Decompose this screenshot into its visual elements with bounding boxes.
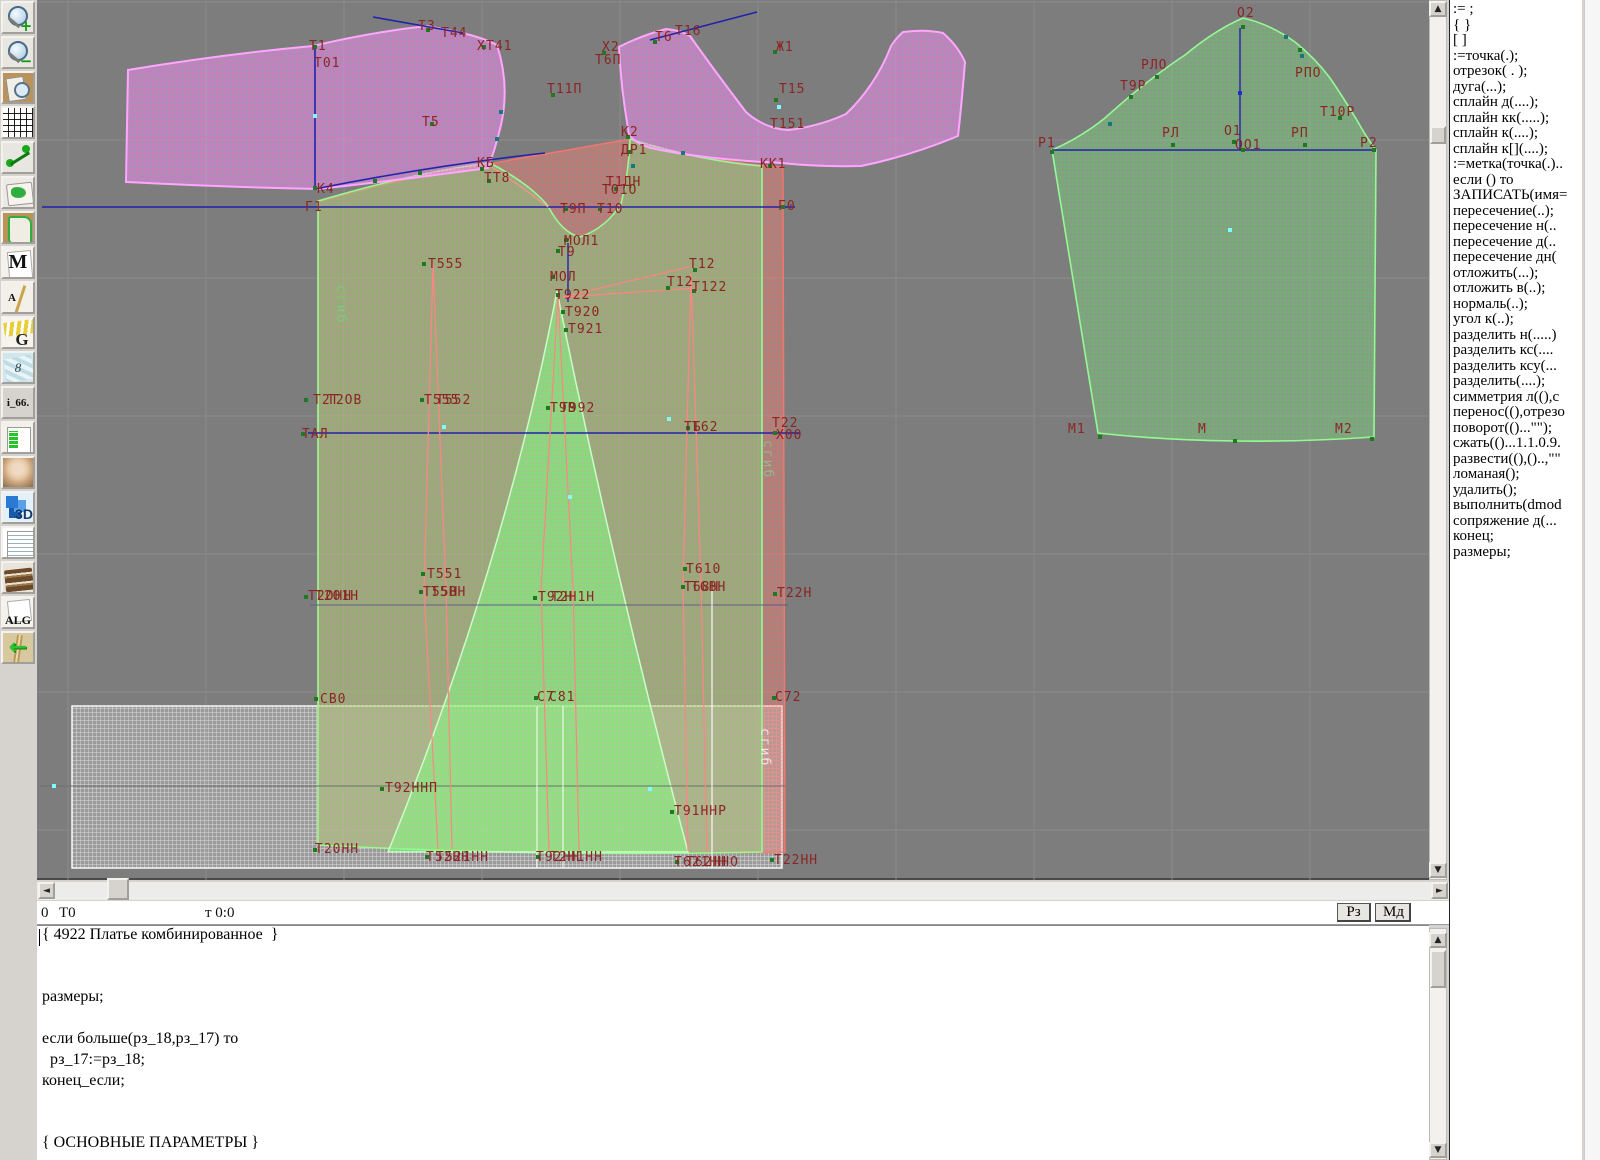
zoom-in-icon: +: [11, 11, 35, 34]
status-bar: 0 Т0 т 0:0 Рз Мд: [37, 901, 1449, 925]
point-label: ТТ8: [484, 171, 510, 186]
toolbar-three-d-button[interactable]: 3D: [1, 491, 35, 524]
command-item[interactable]: дуга(...);: [1453, 80, 1582, 96]
zoom-out-icon: −: [11, 46, 35, 69]
point-label: Г1: [305, 200, 323, 215]
editor-scroll-down-arrow-icon[interactable]: ▼: [1429, 1142, 1447, 1158]
green-point-marker[interactable]: [1303, 143, 1307, 147]
point-label: Р2: [1360, 136, 1378, 151]
point-label: М2: [1335, 422, 1353, 437]
command-item[interactable]: [ ]: [1453, 33, 1582, 49]
blueprint-icon: 8: [3, 353, 33, 382]
editor-scroll-up-arrow-icon[interactable]: ▲: [1429, 932, 1447, 948]
command-item[interactable]: разделить кс(....: [1453, 343, 1582, 359]
teal-point-marker[interactable]: [681, 151, 685, 155]
g-curves-icon: G: [7, 325, 35, 349]
green-point-marker[interactable]: [1370, 437, 1374, 441]
point-label: Т16: [675, 24, 701, 39]
point-label: РЛ: [1162, 126, 1180, 141]
green-point-marker[interactable]: [304, 398, 308, 402]
teal-point-marker[interactable]: [1284, 35, 1288, 39]
toolbar-letter-m-button[interactable]: M: [1, 246, 35, 279]
i66-icon: i_66.: [3, 388, 33, 417]
point-label: Т10Р: [1320, 105, 1355, 120]
command-item[interactable]: сплайн кк(.....);: [1453, 111, 1582, 127]
command-item[interactable]: сплайн к(....);: [1453, 126, 1582, 142]
editor-line[interactable]: конец_если;: [37, 1072, 1429, 1093]
cyan-point-marker[interactable]: [568, 495, 572, 499]
status-coords: т 0:0: [205, 905, 234, 922]
point-label: Т920: [565, 305, 600, 320]
command-item[interactable]: сжать(()...1.1.0.9.: [1453, 436, 1582, 452]
point-label: Т992: [560, 401, 595, 416]
drafting-icon: A: [1, 283, 27, 312]
fold-label: сгиб: [333, 285, 348, 324]
command-item[interactable]: :=точка(.);: [1453, 49, 1582, 65]
point-label: Т2Н1Н: [551, 590, 595, 605]
letter-m-icon: M: [3, 248, 33, 277]
green-point-marker[interactable]: [1241, 25, 1245, 29]
command-item[interactable]: сплайн д(....);: [1453, 95, 1582, 111]
point-label: С72: [775, 690, 801, 705]
rz-button[interactable]: Рз: [1337, 903, 1371, 922]
command-item[interactable]: пересечение дн(: [1453, 250, 1582, 266]
point-label: Т22Н: [777, 586, 812, 601]
md-button[interactable]: Мд: [1375, 903, 1411, 922]
command-item[interactable]: { }: [1453, 18, 1582, 34]
teal-point-marker[interactable]: [631, 164, 635, 168]
toolbar-books-button[interactable]: [1, 561, 35, 594]
point-label: Т521НН: [436, 850, 489, 865]
command-item[interactable]: сопряжение д(...: [1453, 514, 1582, 530]
command-item[interactable]: сплайн к[](....);: [1453, 142, 1582, 158]
point-label: К4: [317, 182, 335, 197]
point-label: Т22НН: [774, 853, 818, 868]
command-item[interactable]: отложить(...);: [1453, 266, 1582, 282]
cyan-point-marker[interactable]: [1228, 228, 1232, 232]
toolbar-g-curves-button[interactable]: G: [1, 316, 35, 349]
point-label: ДР1: [621, 143, 647, 158]
point-label: Ж1: [776, 40, 794, 55]
green-point-marker[interactable]: [421, 572, 425, 576]
point-label: Т6ВН: [691, 580, 726, 595]
command-item[interactable]: разделить(....);: [1453, 374, 1582, 390]
point-label: Т12: [667, 275, 693, 290]
point-label: Т2Н1НН: [550, 850, 603, 865]
cad-application-window: { "toolbar": { "items": [ {"name":"zoom-…: [0, 0, 1600, 1160]
command-item[interactable]: ЗАПИСАТЬ(имя=: [1453, 188, 1582, 204]
point-label: КБ: [477, 156, 495, 171]
point-label: Т921: [568, 322, 603, 337]
toolbar-alg-button[interactable]: ALG: [1, 596, 35, 629]
toolbar-import-arrow-button[interactable]: ←: [1, 631, 35, 664]
command-list: := ;{ }[ ]:=точка(.);отрезок( . );дуга(.…: [1450, 0, 1582, 560]
scroll-down-arrow-icon[interactable]: ▼: [1429, 862, 1447, 878]
toolbar: +−MAG8i_66.3DALG←: [0, 0, 37, 1160]
alg-icon: ALG: [3, 606, 33, 629]
command-item[interactable]: перенос((),отрезо: [1453, 405, 1582, 421]
fold-label: сгиб: [757, 728, 772, 767]
status-point-name: Т0: [59, 905, 76, 922]
import-arrow-icon: ←: [3, 633, 33, 662]
point-label: К2: [621, 125, 639, 140]
status-number: 0: [41, 905, 49, 922]
point-label: Т5ВН: [431, 585, 466, 600]
three-d-icon: 3D: [9, 499, 35, 524]
toolbar-document-button[interactable]: [1, 526, 35, 559]
point-label: С81: [549, 690, 575, 705]
toolbar-zoom-in-button[interactable]: +: [1, 1, 35, 34]
toolbar-pattern-piece-button[interactable]: [1, 211, 35, 244]
green-point-marker[interactable]: [1298, 48, 1302, 52]
point-label: Т610: [686, 562, 721, 577]
command-item[interactable]: удалить();: [1453, 483, 1582, 499]
command-item[interactable]: пересечение н(..: [1453, 219, 1582, 235]
point-label: ТАЛ: [302, 427, 328, 442]
toolbar-measure-button[interactable]: [1, 141, 35, 174]
teal-point-marker[interactable]: [495, 137, 499, 141]
editor-line[interactable]: { ОСНОВНЫЕ ПАРАМЕТРЫ }: [37, 1134, 1429, 1155]
point-label: МОЛ: [550, 270, 576, 285]
point-label: Т91ННР: [674, 804, 727, 819]
point-label: Х: [477, 39, 486, 54]
green-point-marker[interactable]: [418, 171, 422, 175]
point-label: Т2ОВ: [327, 393, 362, 408]
point-label: Т11П: [547, 82, 582, 97]
point-label: Т3: [418, 19, 436, 34]
green-point-marker[interactable]: [314, 697, 318, 701]
point-label: СВ0: [320, 692, 346, 707]
point-label: Т92ННП: [385, 781, 438, 796]
command-item[interactable]: конец;: [1453, 529, 1582, 545]
command-item[interactable]: размеры;: [1453, 545, 1582, 561]
command-item[interactable]: разделить н(.....): [1453, 328, 1582, 344]
point-label: Р1: [1038, 136, 1056, 151]
point-label: Т555: [428, 257, 463, 272]
pattern-drawing[interactable]: Т3Т44Т1Т01ХТ41Т5К4Г1КБТТ8Т11ПТ9ПТ10Х2Т6П…: [37, 0, 1429, 880]
cyan-point-marker[interactable]: [313, 114, 317, 118]
green-point-marker[interactable]: [380, 787, 384, 791]
point-label: Т62ННО: [686, 855, 739, 870]
canvas-hscrollbar[interactable]: ◄ ►: [37, 882, 1449, 900]
editor-vscroll-thumb[interactable]: [1430, 950, 1446, 988]
green-point-marker[interactable]: [774, 98, 778, 102]
point-label: М1: [1068, 422, 1086, 437]
green-point-marker[interactable]: [1171, 143, 1175, 147]
point-label: Т2О1Н: [315, 589, 359, 604]
editor-line[interactable]: рз_17:=рз_18;: [37, 1051, 1429, 1072]
command-item[interactable]: пересечение(..);: [1453, 204, 1582, 220]
point-label: М: [1198, 422, 1207, 437]
point-label: Т62: [692, 420, 718, 435]
pieces-layer: [72, 18, 1376, 868]
toolbar-zoom-out-button[interactable]: −: [1, 36, 35, 69]
point-label: ТО1О: [602, 183, 637, 198]
point-label: Г0: [778, 199, 796, 214]
point-label: Т122: [692, 280, 727, 295]
point-label: ОО1: [1235, 138, 1261, 153]
toolbar-model-photo-button[interactable]: [1, 456, 35, 489]
editor-line[interactable]: размеры;: [37, 988, 1429, 1009]
point-label: Т922: [555, 288, 590, 303]
editor-line[interactable]: [37, 1092, 1429, 1113]
point-label: КК1: [760, 157, 786, 172]
editor-line[interactable]: [37, 1113, 1429, 1134]
drafting-canvas[interactable]: Т3Т44Т1Т01ХТ41Т5К4Г1КБТТ8Т11ПТ9ПТ10Х2Т6П…: [37, 0, 1429, 880]
command-panel: := ;{ }[ ]:=точка(.);отрезок( . );дуга(.…: [1449, 0, 1582, 1160]
canvas-hscroll-thumb[interactable]: [107, 878, 129, 900]
point-label: РЛО: [1141, 58, 1167, 73]
point-label: Т20НН: [315, 842, 359, 857]
text-caret: [39, 929, 40, 946]
command-item[interactable]: отложить в(..);: [1453, 281, 1582, 297]
command-item[interactable]: выполнить(dmod: [1453, 498, 1582, 514]
toolbar-map-sheet-button[interactable]: [1, 176, 35, 209]
scroll-up-arrow-icon[interactable]: ▲: [1429, 1, 1447, 17]
editor-line[interactable]: [37, 968, 1429, 989]
point-label: Т552: [436, 393, 471, 408]
green-point-marker[interactable]: [422, 262, 426, 266]
point-label: Т1: [309, 39, 327, 54]
cyan-point-marker[interactable]: [52, 784, 56, 788]
command-item[interactable]: разделить ксу(...: [1453, 359, 1582, 375]
point-label: Т10: [597, 202, 623, 217]
green-point-marker[interactable]: [1155, 75, 1159, 79]
point-label: Т5: [422, 115, 440, 130]
point-label: Т01: [314, 56, 340, 71]
cyan-point-marker[interactable]: [777, 105, 781, 109]
editor-line[interactable]: { 4922 Платье комбинированное }: [37, 926, 1429, 947]
point-label: Т15: [779, 82, 805, 97]
editor-line[interactable]: [37, 947, 1429, 968]
point-label: Т9Р: [1120, 79, 1146, 94]
program-editor[interactable]: { 4922 Платье комбинированное }размеры;е…: [37, 925, 1429, 1160]
point-label: Т12: [689, 257, 715, 272]
scroll-left-arrow-icon[interactable]: ◄: [38, 882, 55, 899]
green-point-marker[interactable]: [373, 179, 377, 183]
toolbar-i66-button[interactable]: i_66.: [1, 386, 35, 419]
point-label: Т551: [427, 567, 462, 582]
command-item[interactable]: развести((),()..,"": [1453, 452, 1582, 468]
teal-point-marker[interactable]: [499, 110, 503, 114]
teal-point-marker[interactable]: [1108, 122, 1112, 126]
command-item[interactable]: симметрия л((),с: [1453, 390, 1582, 406]
command-item[interactable]: :=метка(точка(.)..: [1453, 157, 1582, 173]
point-label: Т44: [441, 26, 467, 41]
point-label: Т6П: [595, 53, 621, 68]
green-point-marker[interactable]: [1098, 435, 1102, 439]
point-label: РП: [1291, 126, 1309, 141]
teal-point-marker[interactable]: [1300, 54, 1304, 58]
cyan-point-marker[interactable]: [442, 425, 446, 429]
green-point-marker[interactable]: [533, 596, 537, 600]
command-item[interactable]: := ;: [1453, 2, 1582, 18]
command-item[interactable]: отрезок( . );: [1453, 64, 1582, 80]
piece-sleeve[interactable]: [1052, 18, 1376, 441]
point-label: О2: [1237, 6, 1255, 21]
command-item[interactable]: угол к(..);: [1453, 312, 1582, 328]
point-label: Т6: [655, 30, 673, 45]
point-label: РПО: [1295, 66, 1321, 81]
command-item[interactable]: если () то: [1453, 173, 1582, 189]
blue-point-marker[interactable]: [1238, 91, 1242, 95]
cyan-point-marker[interactable]: [648, 787, 652, 791]
editor-line[interactable]: если больше(рз_18,рз_17) то: [37, 1030, 1429, 1051]
point-label: Т41: [486, 39, 512, 54]
command-item[interactable]: пересечение д(..: [1453, 235, 1582, 251]
green-point-marker[interactable]: [1129, 95, 1133, 99]
toolbar-grid-button[interactable]: [1, 106, 35, 139]
green-point-marker[interactable]: [1233, 439, 1237, 443]
toolbar-drafting-button[interactable]: A: [1, 281, 35, 314]
canvas-vscroll-thumb[interactable]: [1430, 126, 1446, 144]
point-label: Т9: [558, 245, 576, 260]
point-label: Х00: [776, 428, 802, 443]
point-label: Т151: [770, 117, 805, 132]
toolbar-size-table-button[interactable]: [1, 421, 35, 454]
command-item[interactable]: поворот(()..."");: [1453, 421, 1582, 437]
cyan-point-marker[interactable]: [667, 417, 671, 421]
fold-label: сгиб: [760, 440, 775, 479]
point-label: О1: [1224, 124, 1242, 139]
toolbar-sheet-preview-button[interactable]: [1, 71, 35, 104]
editor-lines: { 4922 Платье комбинированное }размеры;е…: [37, 926, 1429, 1155]
command-item[interactable]: ломаная();: [1453, 467, 1582, 483]
editor-line[interactable]: [37, 1009, 1429, 1030]
command-item[interactable]: нормаль(..);: [1453, 297, 1582, 313]
scroll-right-arrow-icon[interactable]: ►: [1431, 882, 1448, 899]
point-label: Т9П: [560, 202, 586, 217]
command-panel-scrollbar[interactable]: ▲ ▼: [1584, 0, 1600, 1160]
toolbar-blueprint-button[interactable]: 8: [1, 351, 35, 384]
